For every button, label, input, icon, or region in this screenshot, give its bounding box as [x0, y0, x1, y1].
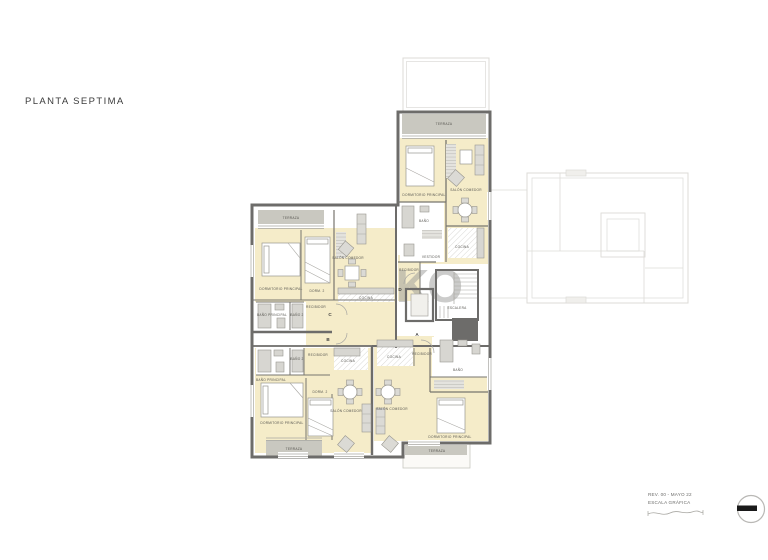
sofa	[362, 404, 371, 432]
wardrobe	[422, 230, 442, 239]
core-wall-mass	[452, 318, 478, 341]
room-label-cocina-c: COCINA	[359, 296, 374, 300]
sink	[458, 340, 467, 346]
room-label-salon-comedor-b: SALÓN COMEDOR	[330, 408, 362, 413]
room-label-recibidor-d: RECIBIDOR	[399, 268, 419, 272]
toilet	[472, 344, 480, 354]
north-symbol	[737, 496, 765, 523]
double-bed	[261, 383, 303, 417]
double-bed	[406, 146, 434, 186]
room-label-terraza-c: TERRAZA	[283, 216, 300, 220]
graphic-scale	[648, 511, 703, 514]
sink	[275, 304, 284, 310]
room-label-escalera: ESCALERA	[447, 306, 467, 310]
room-label-dormitorio-principal-a: DORMITORIO PRINCIPAL	[428, 435, 471, 439]
sofa	[475, 145, 484, 175]
kitchen-counter	[338, 288, 394, 294]
page-title: PLANTA SEPTIMA	[25, 96, 125, 107]
shower	[440, 340, 453, 362]
room-label-vestidor-d: VESTIDOR	[422, 255, 441, 259]
wardrobe	[434, 380, 464, 389]
room-label-terraza-a: TERRAZA	[429, 449, 446, 453]
open-roof-terrace-inner-line	[407, 62, 486, 108]
single-bed	[308, 398, 333, 436]
shower	[258, 350, 271, 372]
right-wing-structure	[490, 170, 688, 303]
room-label-salon-comedor-c: SALÓN COMEDOR	[332, 255, 364, 260]
floor-plan-svg: PLANTA SEPTIMA	[0, 0, 768, 560]
kitchen-counter	[477, 228, 484, 258]
room-label-dorm2-b: DORM. 2	[312, 390, 327, 394]
room-label-bano2-c: BAÑO 2	[290, 312, 303, 317]
room-label-terraza-b: TERRAZA	[286, 447, 303, 451]
single-bed	[305, 237, 330, 283]
double-bed	[437, 398, 465, 433]
shower	[402, 206, 414, 228]
room-label-recibidor-b: RECIBIDOR	[308, 353, 328, 357]
room-label-recibidor-c: RECIBIDOR	[306, 305, 326, 309]
room-label-bano-principal-b: BAÑO PRINCIPAL	[256, 377, 286, 382]
side-table	[460, 150, 472, 164]
room-label-cocina-a: COCINA	[387, 355, 402, 359]
room-label-terraza-d: TERRAZA	[436, 122, 453, 126]
room-label-bano2-b: BAÑO 2	[290, 356, 303, 361]
room-label-dormitorio-principal-c: DORMITORIO PRINCIPAL	[259, 287, 302, 291]
room-label-dorm2-c: DORM. 2	[309, 289, 324, 293]
room-label-bano-principal-c: BAÑO PRINCIPAL	[257, 312, 287, 317]
room-label-bano-d: BAÑO	[419, 218, 429, 223]
double-bed	[262, 243, 300, 276]
room-label-cocina-b: COCINA	[341, 359, 356, 363]
room-label-salon-comedor-a: SALÓN COMEDOR	[376, 406, 408, 411]
toilet	[276, 362, 284, 372]
sofa	[357, 214, 366, 244]
scale-label: ESCALA GRÁFICA	[648, 499, 691, 505]
sink	[420, 206, 429, 212]
kitchen-counter	[334, 348, 360, 356]
bathtub	[292, 350, 303, 372]
revision-text: REV. 00 - MAYO 22	[648, 492, 692, 497]
drawing-sheet: PLANTA SEPTIMA	[0, 0, 768, 560]
room-label-salon-comedor-d: SALÓN COMEDOR	[450, 187, 482, 192]
sink	[274, 350, 283, 356]
toilet	[277, 318, 285, 328]
room-label-recibidor-a: RECIBIDOR	[412, 352, 432, 356]
room-label-bano-a: BAÑO	[453, 367, 463, 372]
room-label-dormitorio-principal-b: DORMITORIO PRINCIPAL	[260, 421, 303, 425]
room-label-dormitorio-principal-d: DORMITORIO PRINCIPAL	[402, 193, 445, 197]
sofa	[376, 408, 385, 434]
toilet	[404, 244, 414, 256]
title-block: REV. 00 - MAYO 22 ESCALA GRÁFICA	[648, 492, 765, 523]
open-roof-terrace-outline	[403, 58, 489, 111]
kitchen-counter	[377, 340, 413, 347]
room-label-cocina-d: COCINA	[455, 245, 470, 249]
